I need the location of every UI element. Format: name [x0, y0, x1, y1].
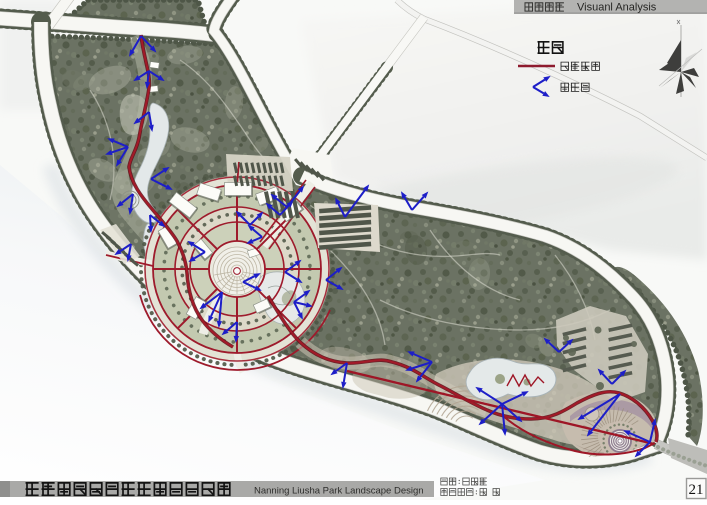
- svg-text:21: 21: [689, 482, 704, 498]
- svg-text:Nanning Liusha Park Landscape: Nanning Liusha Park Landscape Design: [254, 486, 424, 497]
- svg-text:Visuanl Analysis: Visuanl Analysis: [577, 2, 657, 14]
